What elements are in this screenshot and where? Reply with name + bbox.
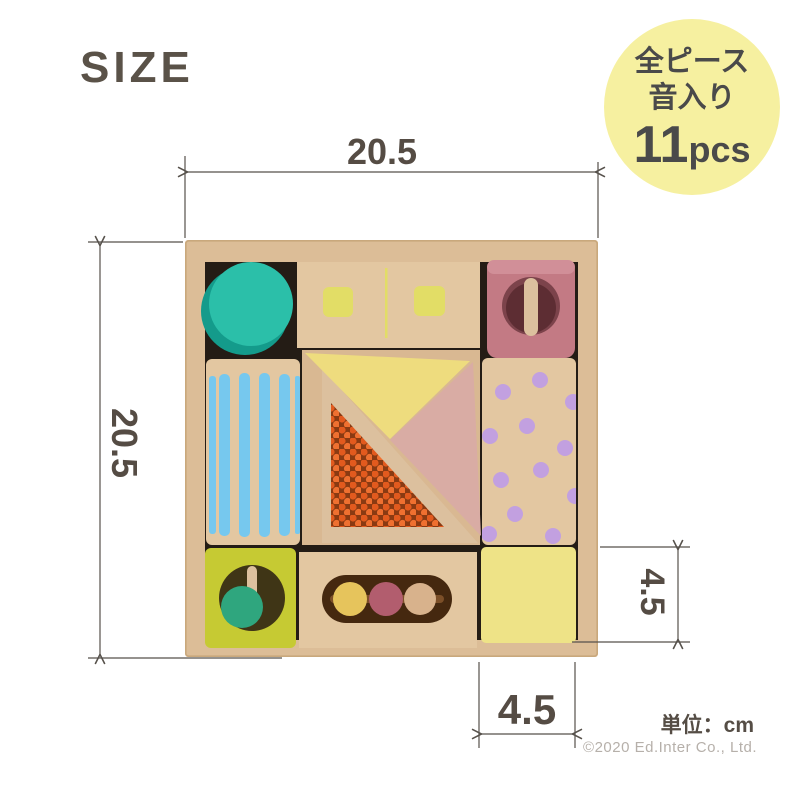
triangle-bead-block [302,350,481,545]
page-title: SIZE [80,46,194,90]
yellow-ball [333,582,367,616]
polka-dot-cylinder-block [481,358,583,545]
blue-stripe [209,376,216,534]
block-height-dimension-label: 4.5 [631,542,671,642]
mauve-ball [369,582,403,616]
piece-count-badge: 全ピース 音入り 11pcs [604,19,780,195]
yellow-divider-line [385,268,388,338]
purple-dot [557,440,573,456]
width-dimension-label: 20.5 [332,131,432,173]
purple-dot [507,506,523,522]
blue-stripe [259,373,270,537]
size-diagram-page: SIZE 全ピース 音入り 11pcs [0,0,800,800]
blue-stripe [279,374,290,536]
purple-dot [493,472,509,488]
green-ball [221,586,263,628]
purple-dot [545,528,561,544]
badge-count-row: 11pcs [633,119,750,171]
purple-dot [481,526,497,542]
rattle-block [299,552,477,648]
badge-line-1: 全ピース [635,45,750,80]
purple-dot [532,372,548,388]
block-width-dimension-label: 4.5 [477,686,577,734]
purple-dot [533,462,549,478]
product-photo [185,240,598,657]
mauve-cylinder-top-edge [487,260,575,274]
mauve-dowel [524,278,538,336]
beige-ball [404,583,436,615]
purple-dot [495,384,511,400]
teal-cylinder-top [209,262,293,346]
badge-text: 全ピース 音入り 11pcs [604,19,780,195]
blue-stripe [295,376,300,534]
striped-cylinder-block [206,359,300,545]
pale-yellow-cube [481,547,576,643]
badge-count: 11 [633,116,688,174]
badge-count-unit: pcs [688,129,750,170]
blue-stripe [219,374,230,536]
mauve-cylinder-block [487,260,575,358]
purple-dot [519,418,535,434]
yellow-square-print [414,286,445,316]
yellow-square-print [323,287,353,317]
height-dimension-label: 20.5 [105,388,145,498]
purple-dot [482,428,498,444]
blue-stripe [239,373,250,537]
copyright-text: ©2020 Ed.Inter Co., Ltd. [583,739,757,756]
badge-line-2: 音入り [648,81,735,116]
chartreuse-ball-block [205,548,296,648]
unit-note: 単位：cm [661,709,754,739]
wood-block-yellow-squares [297,262,480,348]
